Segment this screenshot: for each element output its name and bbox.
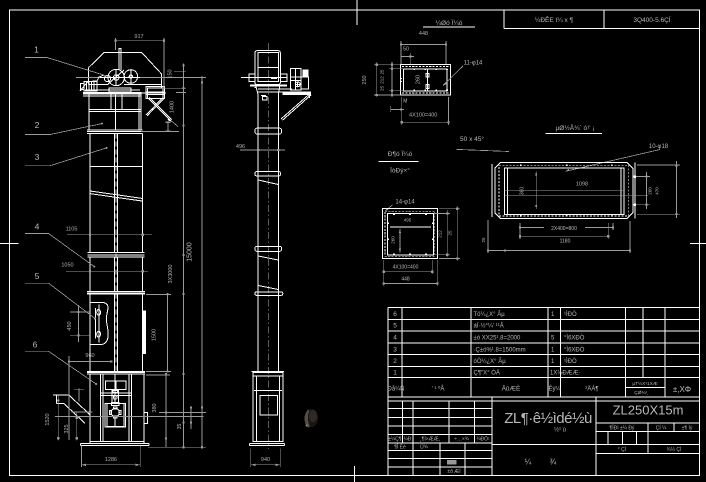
svg-text:ÇÍ ¼: ÇÍ ¼ [656, 425, 667, 432]
svg-text:±ð ÆÌ: ±ð ÆÌ [447, 468, 461, 475]
svg-text:150: 150 [168, 69, 174, 78]
svg-text:µT½X¹1XÆ: µT½X¹1XÆ [632, 380, 657, 387]
svg-text:1X¼ÐÆÆ·: 1X¼ÐÆÆ· [550, 371, 581, 377]
svg-text:ÇØ¾¹¸: ÇØ¾¹¸ [634, 390, 649, 396]
svg-text:3: 3 [393, 346, 397, 353]
svg-text:Tö¼¿X° Âµ: Tö¼¿X° Âµ [474, 311, 506, 318]
svg-text:1286: 1286 [105, 457, 117, 463]
svg-text:÷…×¾: ÷…×¾ [454, 437, 470, 443]
svg-text:1: 1 [34, 45, 39, 55]
svg-text:940: 940 [261, 457, 270, 463]
svg-text:°Ì6XÐÒ: °Ì6XÐÒ [564, 346, 585, 353]
svg-text:²ÄÁ¶: ²ÄÁ¶ [585, 386, 598, 393]
svg-text:Ç¶"X° ÓÄ: Ç¶"X° ÓÄ [474, 370, 500, 377]
svg-text:325: 325 [64, 424, 70, 433]
svg-text:450: 450 [67, 321, 73, 330]
svg-text:Êý¼: Êý¼ [548, 385, 561, 393]
svg-text:448: 448 [419, 31, 428, 37]
svg-text:¾¼ ÇÍ: ¾¼ ÇÍ [667, 446, 682, 453]
svg-text:6: 6 [33, 340, 38, 350]
svg-text:1050: 1050 [61, 263, 73, 269]
svg-text:5: 5 [35, 271, 40, 281]
svg-text:½¹ ú: ½¹ ú [554, 427, 566, 434]
svg-text:1: 1 [393, 370, 397, 377]
svg-text:35: 35 [177, 424, 183, 430]
svg-text:' ¹ ºÅ: ' ¹ ºÅ [432, 386, 445, 393]
svg-text:µØ½Å¾´ ó¹' ¡: µØ½Å¾´ ó¹' ¡ [556, 123, 595, 132]
svg-text:25: 25 [481, 237, 486, 243]
svg-text:Ü¾: Ü¾ [420, 444, 429, 451]
svg-text:4: 4 [393, 335, 397, 342]
svg-text:1098: 1098 [576, 181, 588, 187]
svg-text:4X100=400: 4X100=400 [393, 265, 419, 271]
svg-text:10-φ18: 10-φ18 [649, 144, 669, 150]
svg-text:360: 360 [520, 187, 526, 196]
svg-text:260: 260 [415, 75, 421, 84]
svg-text:Ðå¼Ñ: Ðå¼Ñ [387, 386, 404, 393]
svg-text:1400: 1400 [169, 101, 175, 113]
svg-text:495: 495 [404, 218, 412, 223]
svg-text:14-φ14: 14-φ14 [395, 200, 415, 206]
svg-text:380: 380 [152, 403, 158, 412]
svg-text:2: 2 [393, 358, 397, 365]
svg-text:° ÇÍ: ° ÇÍ [618, 446, 627, 453]
svg-text:±¼Ç¶: ±¼Ç¶ [388, 437, 402, 443]
svg-text:3X3000: 3X3000 [168, 265, 174, 284]
svg-text:1105: 1105 [66, 227, 78, 233]
svg-text:1520: 1520 [45, 413, 51, 425]
svg-text:25: 25 [380, 69, 385, 75]
svg-text:óÒ¼¿X° Âµ: óÒ¼¿X° Âµ [474, 358, 507, 365]
svg-text:3: 3 [35, 152, 40, 162]
svg-text:Ð¶ó Ï¼ó: Ð¶ó Ï¼ó [388, 150, 413, 158]
svg-text:áÏ·½°¼' ¹¹Â: áÏ·½°¼' ¹¹Â [474, 323, 504, 330]
svg-text:¸¶Ì×ÆÆ,: ¸¶Ì×ÆÆ, [420, 436, 440, 443]
svg-text:260: 260 [648, 187, 653, 195]
svg-text:6: 6 [393, 311, 397, 318]
svg-text:250: 250 [362, 75, 368, 84]
svg-text:4: 4 [35, 222, 40, 232]
svg-text:¼ÐÖ¹: ¼ÐÖ¹ [476, 436, 490, 443]
svg-text:¾: ¾ [550, 458, 557, 467]
svg-text:212: 212 [438, 230, 443, 238]
svg-text:±¶ Ìý: ±¶ Ìý [682, 425, 693, 432]
svg-text:¶Î Éè: ¶Î Éè [394, 444, 406, 451]
svg-text:496: 496 [236, 144, 245, 150]
svg-text:¹ÌÐÒ: ¹ÌÐÒ [564, 311, 577, 318]
svg-text:2X400=800: 2X400=800 [551, 226, 577, 232]
svg-text:25: 25 [448, 230, 453, 236]
svg-text:470: 470 [655, 187, 660, 195]
svg-text:¼ÐÊE t¼ x ¶: ¼ÐÊE t¼ x ¶ [535, 15, 574, 24]
svg-text:ÃûÆÈ: ÃûÆÈ [502, 384, 521, 393]
svg-text:¼Øó Ï¼ó: ¼Øó Ï¼ó [436, 19, 463, 27]
svg-text:15000: 15000 [187, 242, 194, 262]
svg-text:25: 25 [380, 86, 385, 92]
svg-text:1500: 1500 [152, 329, 158, 341]
svg-text:ÏòÐý×°: ÏòÐý×° [390, 167, 410, 175]
svg-text:260: 260 [391, 236, 396, 244]
svg-text:±,XΦ: ±,XΦ [673, 385, 691, 394]
svg-text:ZL250X15m: ZL250X15m [613, 403, 684, 418]
svg-text:960: 960 [85, 353, 94, 359]
svg-text:4X100=400: 4X100=400 [409, 113, 437, 119]
svg-text:11-φ14: 11-φ14 [464, 61, 483, 67]
svg-text:50 x 45°: 50 x 45° [460, 135, 484, 143]
svg-text:917: 917 [134, 34, 143, 40]
svg-text:¶ÎÐì ±¼ Ðý: ¶ÎÐì ±¼ Ðý [610, 425, 635, 432]
svg-text:±ó XX25¹.8=2000: ±ó XX25¹.8=2000 [474, 336, 521, 342]
svg-text:3Q400-5.6ÇÍ: 3Q400-5.6ÇÍ [633, 15, 670, 24]
svg-text:·Ç±ó%¹.8=1500mm: ·Ç±ó%¹.8=1500mm [474, 347, 526, 353]
svg-text:50: 50 [403, 47, 409, 53]
svg-text:¹ÌÐÒ: ¹ÌÐÒ [564, 358, 577, 365]
svg-text:5: 5 [393, 323, 397, 330]
svg-text:¼: ¼ [525, 458, 532, 467]
svg-text:¼Ð: ¼Ð [404, 437, 412, 443]
svg-text:448: 448 [401, 277, 410, 283]
svg-text:M: M [403, 99, 407, 105]
svg-text:212: 212 [380, 76, 385, 84]
svg-text:2: 2 [35, 120, 40, 130]
svg-text:°Ì6XÐÒ: °Ì6XÐÒ [564, 335, 585, 342]
svg-text:ZL¶·ê½ìdé½ù: ZL¶·ê½ìdé½ù [504, 410, 592, 427]
svg-text:1180: 1180 [560, 238, 571, 244]
